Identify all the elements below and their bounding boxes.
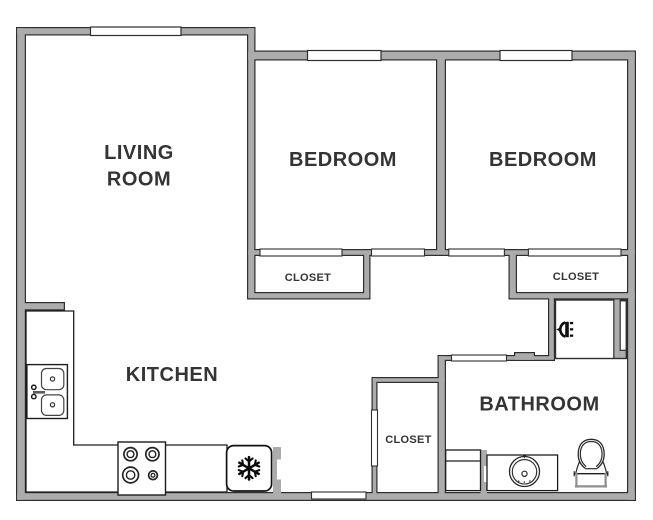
svg-text:BATHROOM: BATHROOM xyxy=(479,394,599,416)
svg-text:BEDROOM: BEDROOM xyxy=(489,149,597,171)
svg-text:BEDROOM: BEDROOM xyxy=(289,149,397,171)
svg-text:CLOSET: CLOSET xyxy=(385,434,431,446)
svg-text:CLOSET: CLOSET xyxy=(553,271,599,283)
svg-text:LIVING: LIVING xyxy=(104,142,174,164)
svg-text:ROOM: ROOM xyxy=(107,169,171,191)
svg-text:CLOSET: CLOSET xyxy=(285,272,331,284)
svg-text:KITCHEN: KITCHEN xyxy=(126,364,218,386)
